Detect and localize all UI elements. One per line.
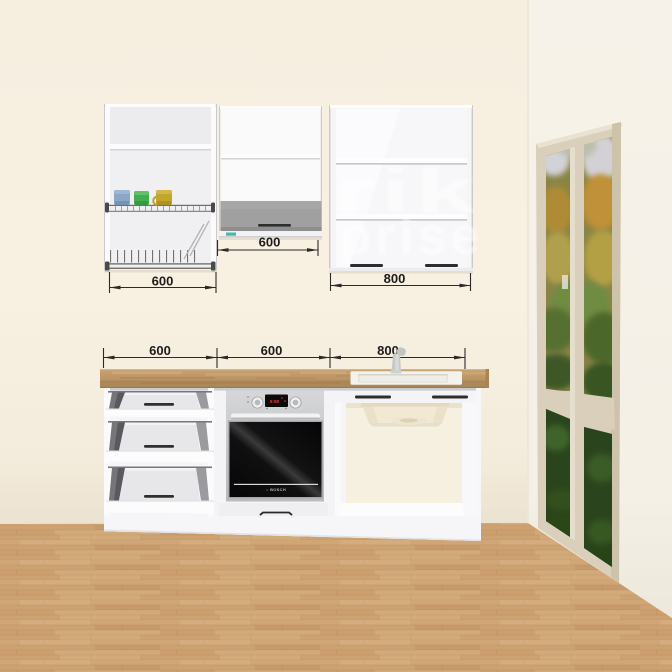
svg-text:○ BOSCH: ○ BOSCH [266, 487, 286, 492]
svg-text:600: 600 [261, 343, 283, 358]
svg-text:prise: prise [339, 207, 483, 266]
svg-text:600: 600 [259, 235, 281, 250]
svg-text:600: 600 [149, 343, 171, 358]
svg-text:8:88: 8:88 [270, 399, 280, 404]
svg-text:600: 600 [152, 274, 174, 289]
svg-text:800: 800 [384, 271, 406, 286]
